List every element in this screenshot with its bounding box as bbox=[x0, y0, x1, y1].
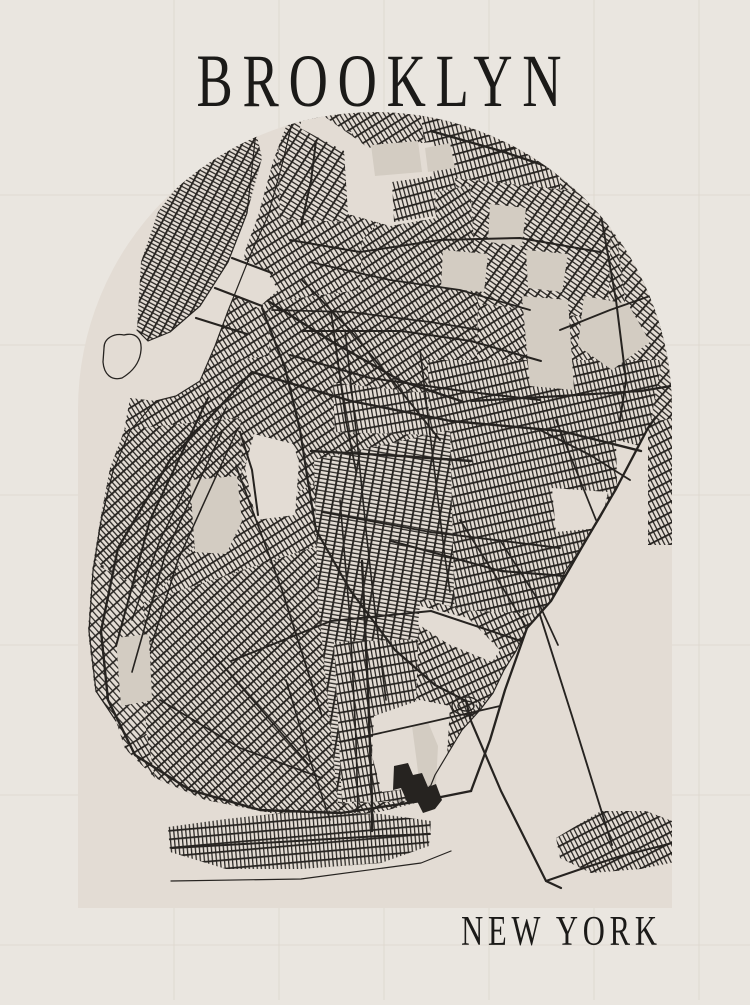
svg-text:NEW YORK: NEW YORK bbox=[461, 908, 657, 955]
